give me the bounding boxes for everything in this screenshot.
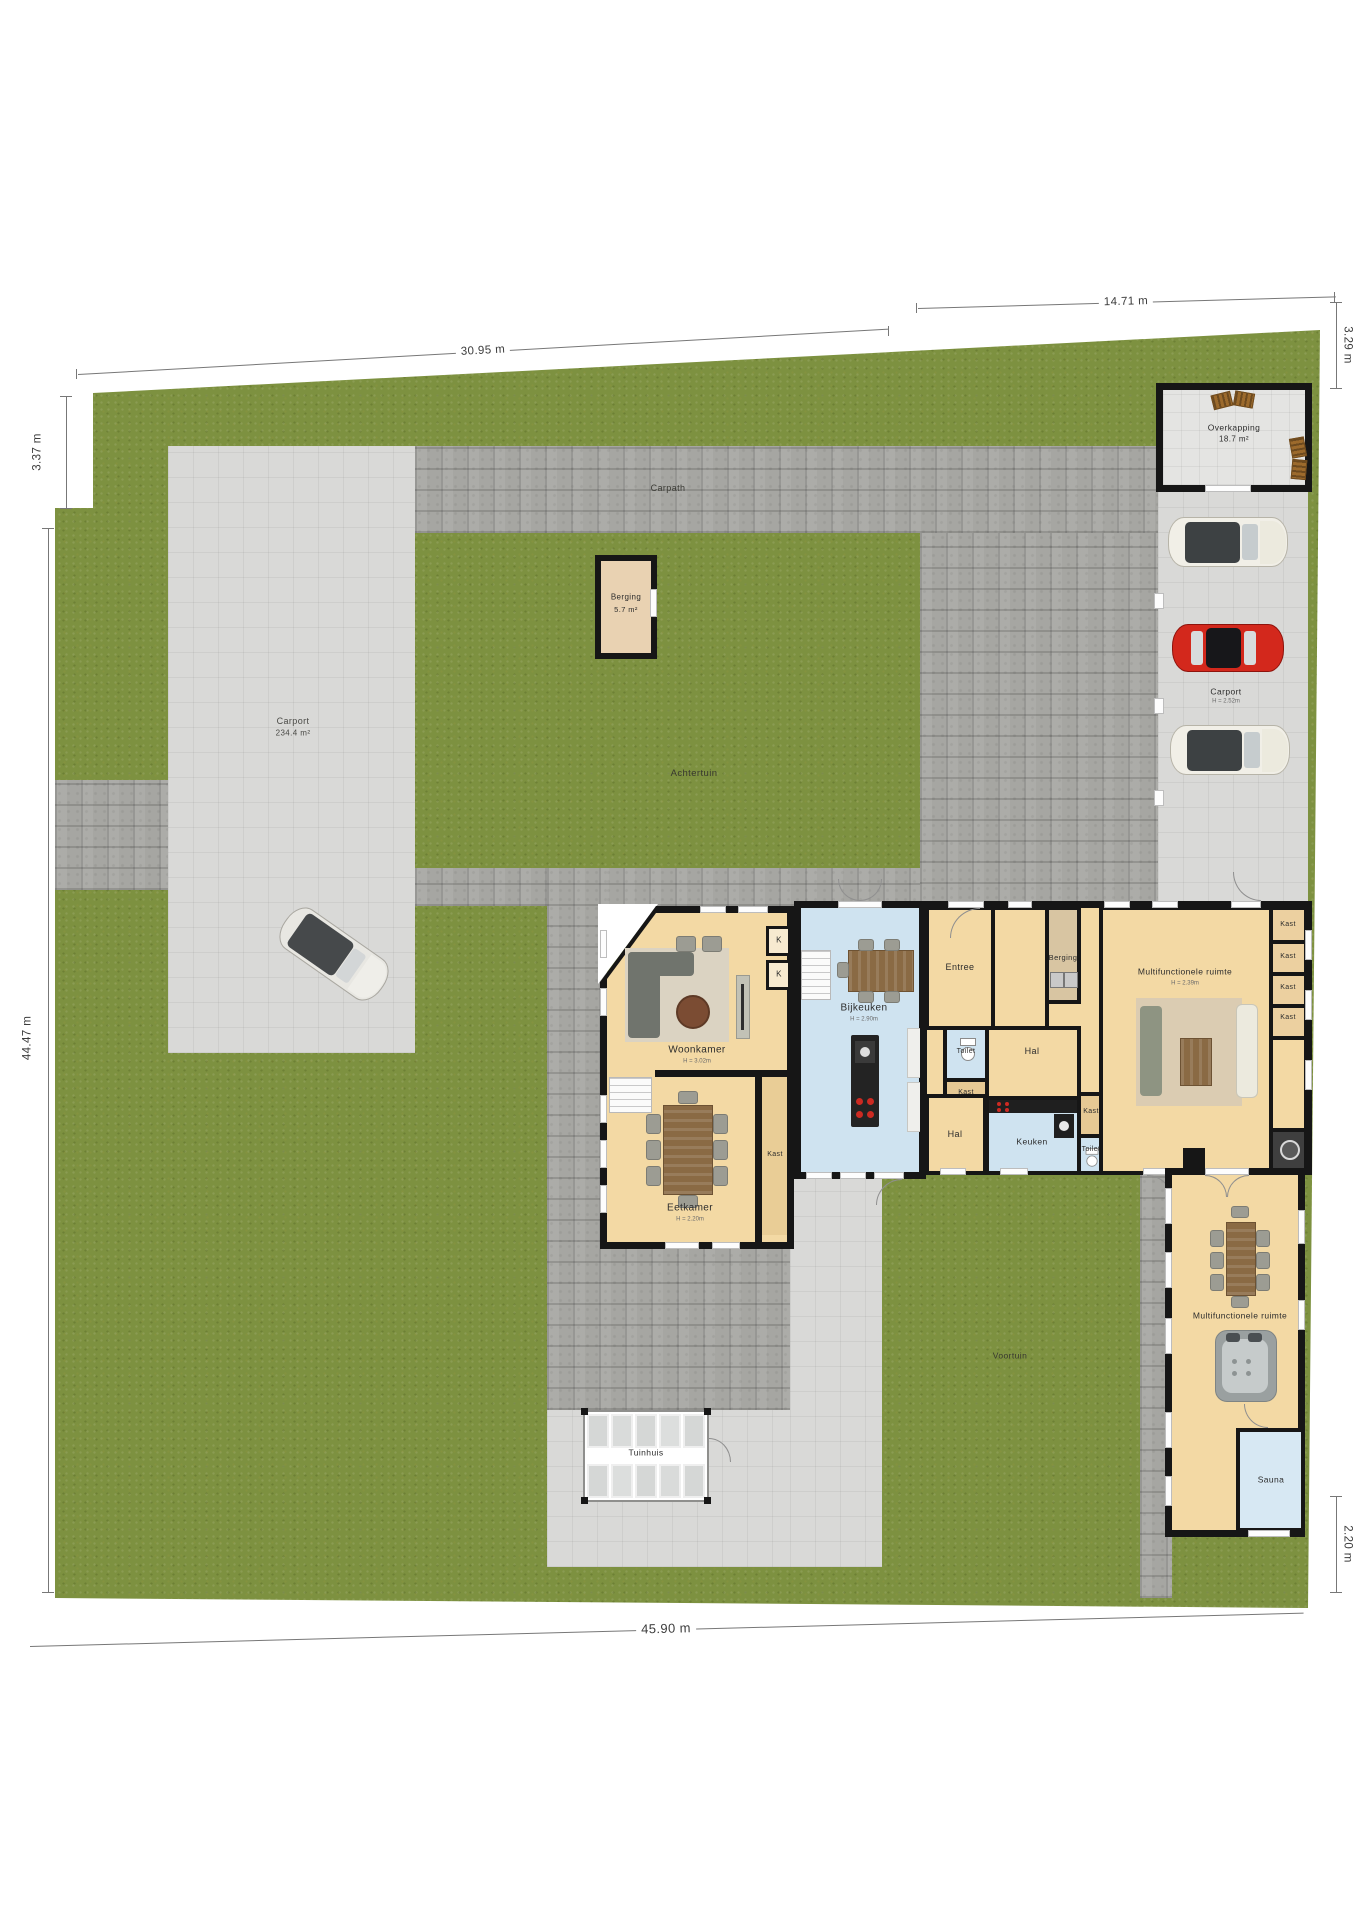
entree-door (948, 901, 984, 908)
carport-right-height: H = 2.52m (1212, 699, 1240, 706)
counter-icon (907, 1028, 921, 1078)
dining-table-icon (663, 1105, 713, 1195)
chimney-block (1183, 1148, 1205, 1172)
room-hal-1 (985, 1026, 1081, 1100)
jacuzzi-icon (1215, 1330, 1277, 1402)
window (1152, 901, 1178, 908)
keuken-label: Keuken (1016, 1137, 1047, 1146)
dim-tick (60, 508, 72, 509)
dim-top-right: 14.71 m (1099, 295, 1154, 309)
hal-1-label: Hal (1025, 1047, 1040, 1057)
bijkeuken-label: Bijkeuken (841, 1003, 888, 1014)
chair-icon (884, 991, 900, 1003)
wall-woonkamer-eetkamer (655, 1070, 794, 1077)
dim-line-right-upper (1336, 303, 1337, 389)
achtertuin-label: Achtertuin (671, 769, 718, 779)
dim-left-upper: 3.37 m (32, 431, 45, 473)
window (1305, 1060, 1312, 1090)
carport-edge-marker (1154, 790, 1164, 806)
carport-left-label: Carport (277, 717, 310, 727)
car-white-suv-1 (1168, 517, 1288, 567)
table-icon (848, 950, 914, 992)
woonkamer-height: H = 3.02m (683, 1059, 711, 1066)
window (1248, 1530, 1290, 1537)
dim-tick (1330, 1592, 1342, 1593)
washer-icon (1064, 972, 1078, 988)
window (1305, 930, 1312, 960)
toilet-1-label: Toilet (957, 1048, 976, 1056)
wall-kast (755, 1077, 762, 1242)
kast-col-1-label: Kast (1280, 921, 1296, 929)
room-hal-upper-mid (991, 906, 1049, 1030)
chair-icon (858, 939, 874, 951)
floor-plan-canvas: 30.95 m 14.71 m 3.37 m 3.29 m 44.47 m 2.… (0, 0, 1358, 1920)
room-kast-col-4 (1269, 1004, 1308, 1040)
sideboard-icon (736, 975, 750, 1039)
sofa-icon (1140, 1006, 1162, 1096)
car-white-suv-2 (1170, 725, 1290, 775)
carport-left-area: 234.4 m² (276, 730, 311, 739)
counter-icon (907, 1082, 921, 1132)
door (1231, 901, 1261, 908)
chair-icon (713, 1140, 728, 1160)
chair-icon (858, 991, 874, 1003)
firewood-icon (1291, 459, 1308, 480)
tuinhuis-label: Tuinhuis (626, 1448, 665, 1457)
chair-icon (1210, 1230, 1224, 1247)
garden-shed-label: Berging (611, 594, 641, 603)
window (1000, 1168, 1028, 1175)
chair-icon (837, 962, 849, 978)
window (600, 1185, 607, 1213)
dim-tick (916, 303, 917, 313)
dim-tick (888, 326, 889, 336)
window (1165, 1252, 1172, 1288)
bijkeuken-door-top (838, 901, 882, 908)
kitchen-counter-icon (989, 1100, 1077, 1113)
carport-right-label: Carport (1210, 687, 1241, 696)
armchair-icon (702, 936, 722, 952)
dim-tick (1334, 292, 1335, 302)
sauna-label: Sauna (1258, 1475, 1285, 1484)
window (1165, 1412, 1172, 1448)
chair-icon (646, 1140, 661, 1160)
chair-icon (713, 1166, 728, 1186)
dim-tick (42, 1592, 54, 1593)
window (1305, 990, 1312, 1020)
window (940, 1168, 966, 1175)
window (712, 1242, 740, 1249)
window (806, 1172, 832, 1179)
chair-icon (1256, 1274, 1270, 1291)
chair-icon (713, 1114, 728, 1134)
dim-tick (60, 396, 72, 397)
firewood-icon (1289, 436, 1307, 458)
multifunctioneel-1-height: H = 2.39m (1171, 981, 1199, 988)
stairs-icon (801, 950, 831, 1000)
dim-tick (1330, 302, 1342, 303)
kitchen-island-icon (851, 1035, 879, 1127)
berging-label: Berging (1049, 954, 1078, 962)
carport-edge-marker (1154, 698, 1164, 714)
chair-icon (1256, 1230, 1270, 1247)
dim-tick (42, 528, 54, 529)
terrace-pad (790, 1172, 882, 1567)
room-kast-col-5 (1269, 1036, 1308, 1132)
dim-line-left-upper (66, 397, 67, 509)
chair-icon (1210, 1274, 1224, 1291)
dining-table-icon (1226, 1222, 1256, 1296)
chair-icon (1210, 1252, 1224, 1269)
kast-col-4-label: Kast (1280, 1014, 1296, 1022)
window (738, 906, 768, 913)
dim-bottom: 45.90 m (636, 1621, 696, 1637)
armchair-icon (676, 936, 696, 952)
sofa-icon (628, 952, 660, 1038)
window (1165, 1188, 1172, 1224)
eetkamer-label: Eetkamer (667, 1203, 713, 1214)
eetkamer-height: H = 2.20m (676, 1217, 704, 1224)
washer-icon (1050, 972, 1064, 988)
window (1298, 1210, 1305, 1244)
dim-right-upper: 3.29 m (1341, 324, 1354, 366)
overkapping-area: 18.7 m² (1219, 436, 1249, 445)
toilet-2-label: Toilet (1082, 1146, 1101, 1154)
overkapping-label: Overkapping (1208, 423, 1261, 432)
dim-line-right-lower (1336, 1496, 1337, 1592)
hal-2-label: Hal (948, 1130, 963, 1140)
window (665, 1242, 699, 1249)
coffee-table-icon (1180, 1038, 1212, 1086)
window (1165, 1318, 1172, 1354)
shower-icon (1280, 1140, 1300, 1160)
window (1008, 901, 1032, 908)
sink-icon (1054, 1114, 1074, 1138)
closet-k1-label: K (776, 937, 782, 946)
multifunctioneel-1-label: Multifunctionele ruimte (1138, 967, 1232, 976)
garden-shed-area: 5.7 m² (614, 606, 638, 614)
dim-tick (1330, 1496, 1342, 1497)
chair-icon (1256, 1252, 1270, 1269)
window (600, 1140, 607, 1168)
closet-k2-label: K (776, 971, 782, 980)
overkapping-door (1205, 485, 1251, 492)
french-door (1205, 1168, 1249, 1175)
chair-icon (678, 1091, 698, 1104)
multifunctioneel-2-label: Multifunctionele ruimte (1193, 1311, 1287, 1320)
woonkamer-label: Woonkamer (668, 1045, 725, 1056)
driveway-entrance-left (55, 780, 168, 890)
entree-label: Entree (946, 963, 975, 973)
firewood-icon (1233, 390, 1255, 408)
window (600, 1095, 607, 1123)
dim-line-left-side (48, 528, 49, 1592)
window (1298, 1300, 1305, 1330)
dim-top-left: 30.95 m (456, 343, 511, 359)
coffee-table-icon (676, 995, 710, 1029)
kast-1-label: Kast (958, 1089, 974, 1097)
chair-icon (646, 1114, 661, 1134)
chaise-icon (1236, 1004, 1258, 1098)
window (1165, 1476, 1172, 1506)
carport-edge-marker (1154, 593, 1164, 609)
window (840, 1172, 866, 1179)
voortuin-label: Voortuin (993, 1351, 1027, 1360)
kast-col-3-label: Kast (1280, 984, 1296, 992)
window (1104, 901, 1130, 908)
dim-right-lower: 2.20 m (1341, 1523, 1354, 1565)
dim-tick (76, 369, 77, 379)
chair-icon (1231, 1206, 1249, 1218)
chair-icon (646, 1166, 661, 1186)
kast-tall-label: Kast (767, 1151, 783, 1159)
window (700, 906, 726, 913)
driveway-right (920, 533, 1160, 905)
garden-shed-door (650, 589, 657, 617)
chair-icon (1231, 1296, 1249, 1308)
kast-col-2-label: Kast (1280, 953, 1296, 961)
carpath-band (415, 446, 1160, 533)
window (600, 930, 607, 958)
dim-left-side: 44.47 m (22, 1014, 35, 1062)
carpath-label: Carpath (651, 484, 686, 494)
car-red (1172, 624, 1284, 672)
dim-tick (1330, 388, 1342, 389)
path-south (547, 1242, 790, 1410)
kast-2-label: Kast (1083, 1108, 1099, 1116)
stairs-icon (609, 1077, 652, 1113)
bijkeuken-height: H = 2.90m (850, 1017, 878, 1024)
chair-icon (884, 939, 900, 951)
window (600, 988, 607, 1016)
door (874, 1172, 904, 1179)
